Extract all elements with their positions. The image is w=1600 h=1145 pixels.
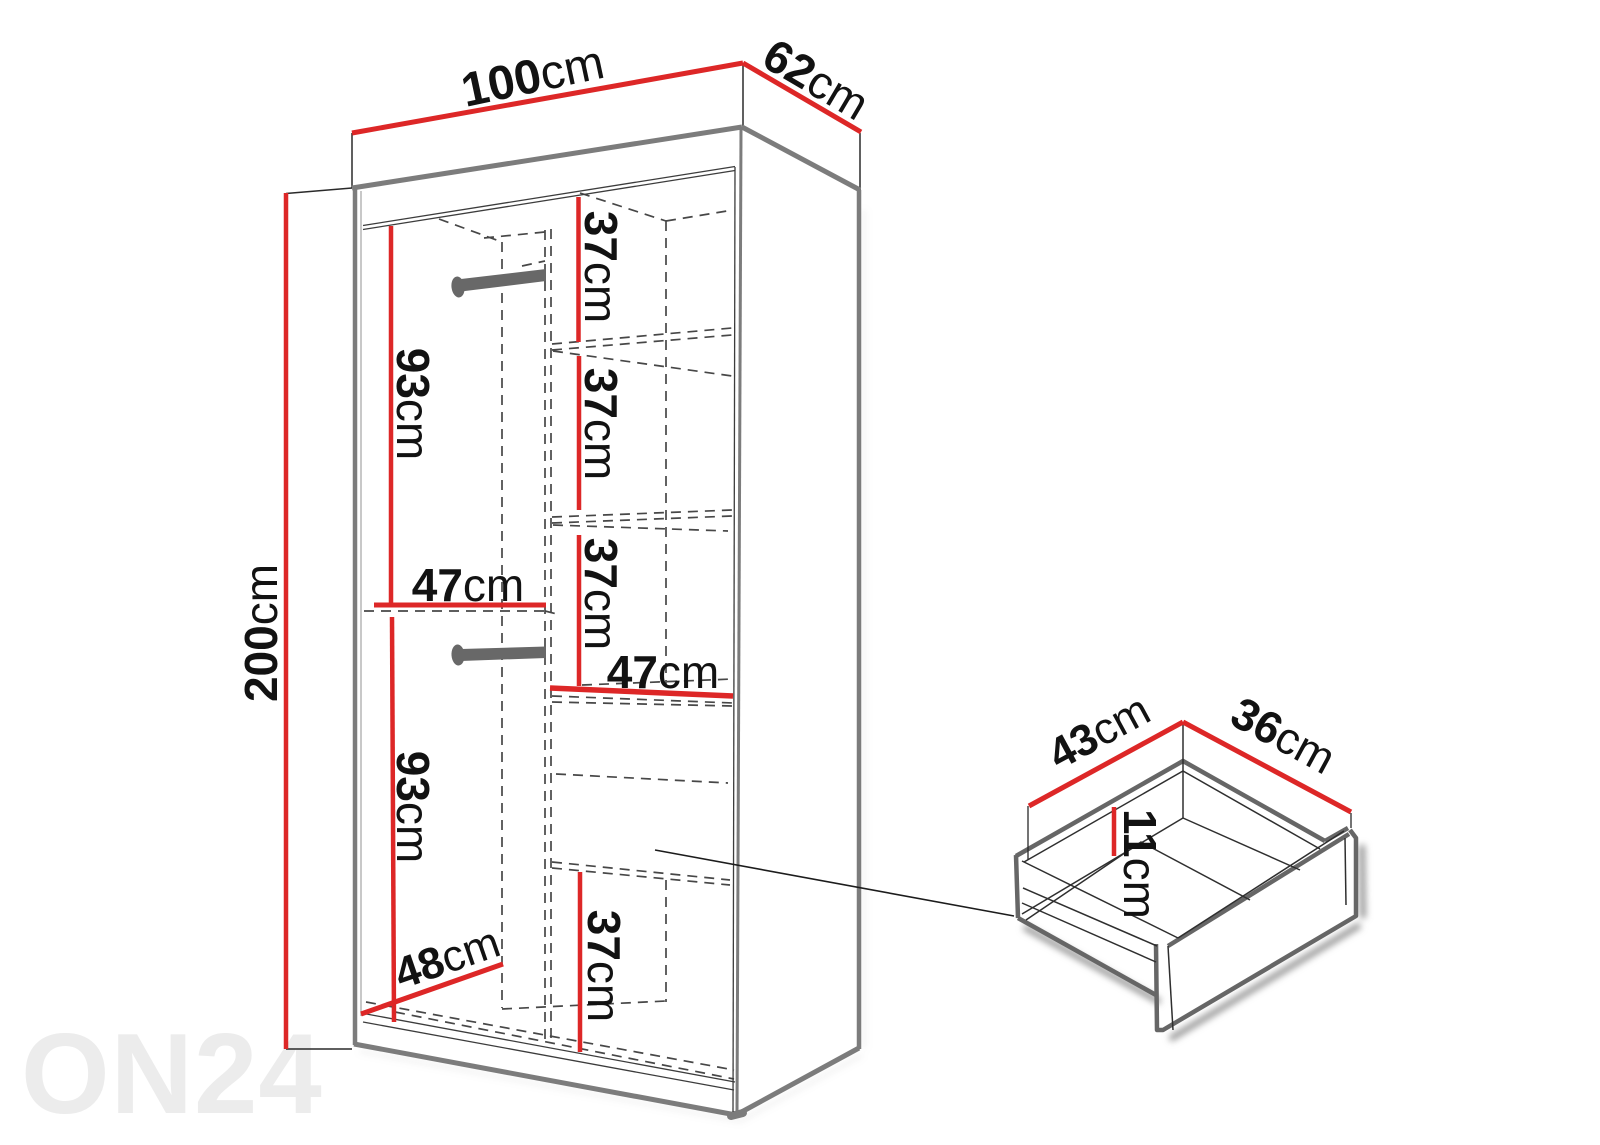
svg-text:11cm: 11cm <box>1114 809 1166 919</box>
svg-text:37cm: 37cm <box>575 538 627 651</box>
svg-text:37cm: 37cm <box>575 211 627 324</box>
svg-text:37cm: 37cm <box>575 368 627 481</box>
svg-text:200cm: 200cm <box>235 564 287 702</box>
svg-text:93cm: 93cm <box>387 348 439 461</box>
svg-text:93cm: 93cm <box>387 751 439 864</box>
svg-text:37cm: 37cm <box>578 910 630 1023</box>
svg-text:47cm: 47cm <box>412 559 525 611</box>
svg-text:47cm: 47cm <box>607 646 720 698</box>
svg-text:ON24: ON24 <box>21 1011 323 1138</box>
